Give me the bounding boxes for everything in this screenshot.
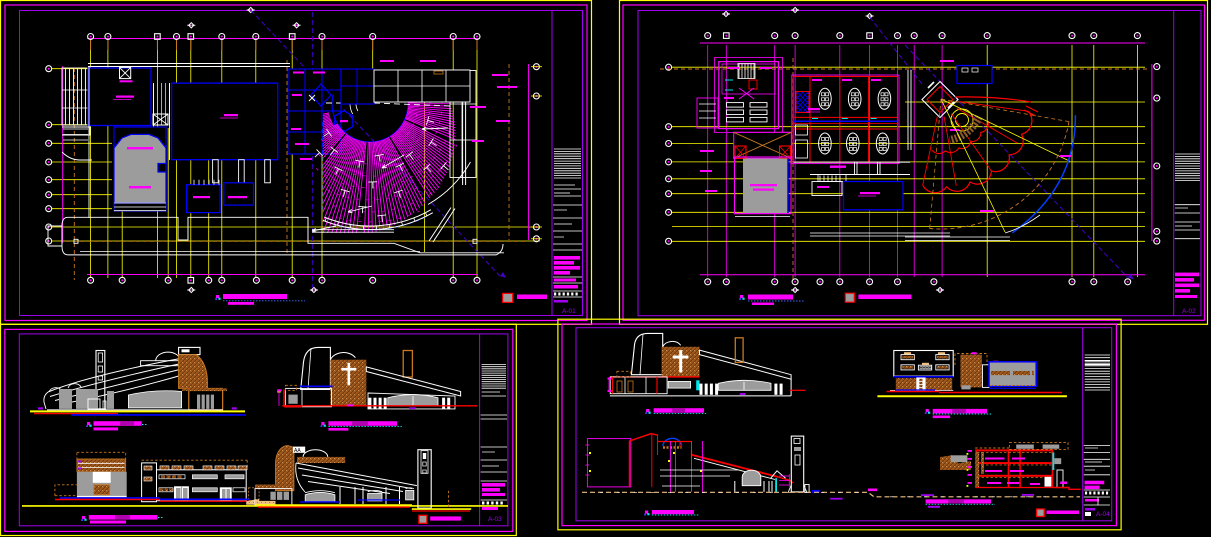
svg-text:AA: AA — [294, 448, 301, 454]
svg-text:A-03: A-03 — [488, 516, 502, 523]
svg-text:A-04: A-04 — [1096, 511, 1110, 518]
svg-text:A-02: A-02 — [1182, 308, 1196, 315]
svg-text:A-01: A-01 — [562, 308, 576, 315]
